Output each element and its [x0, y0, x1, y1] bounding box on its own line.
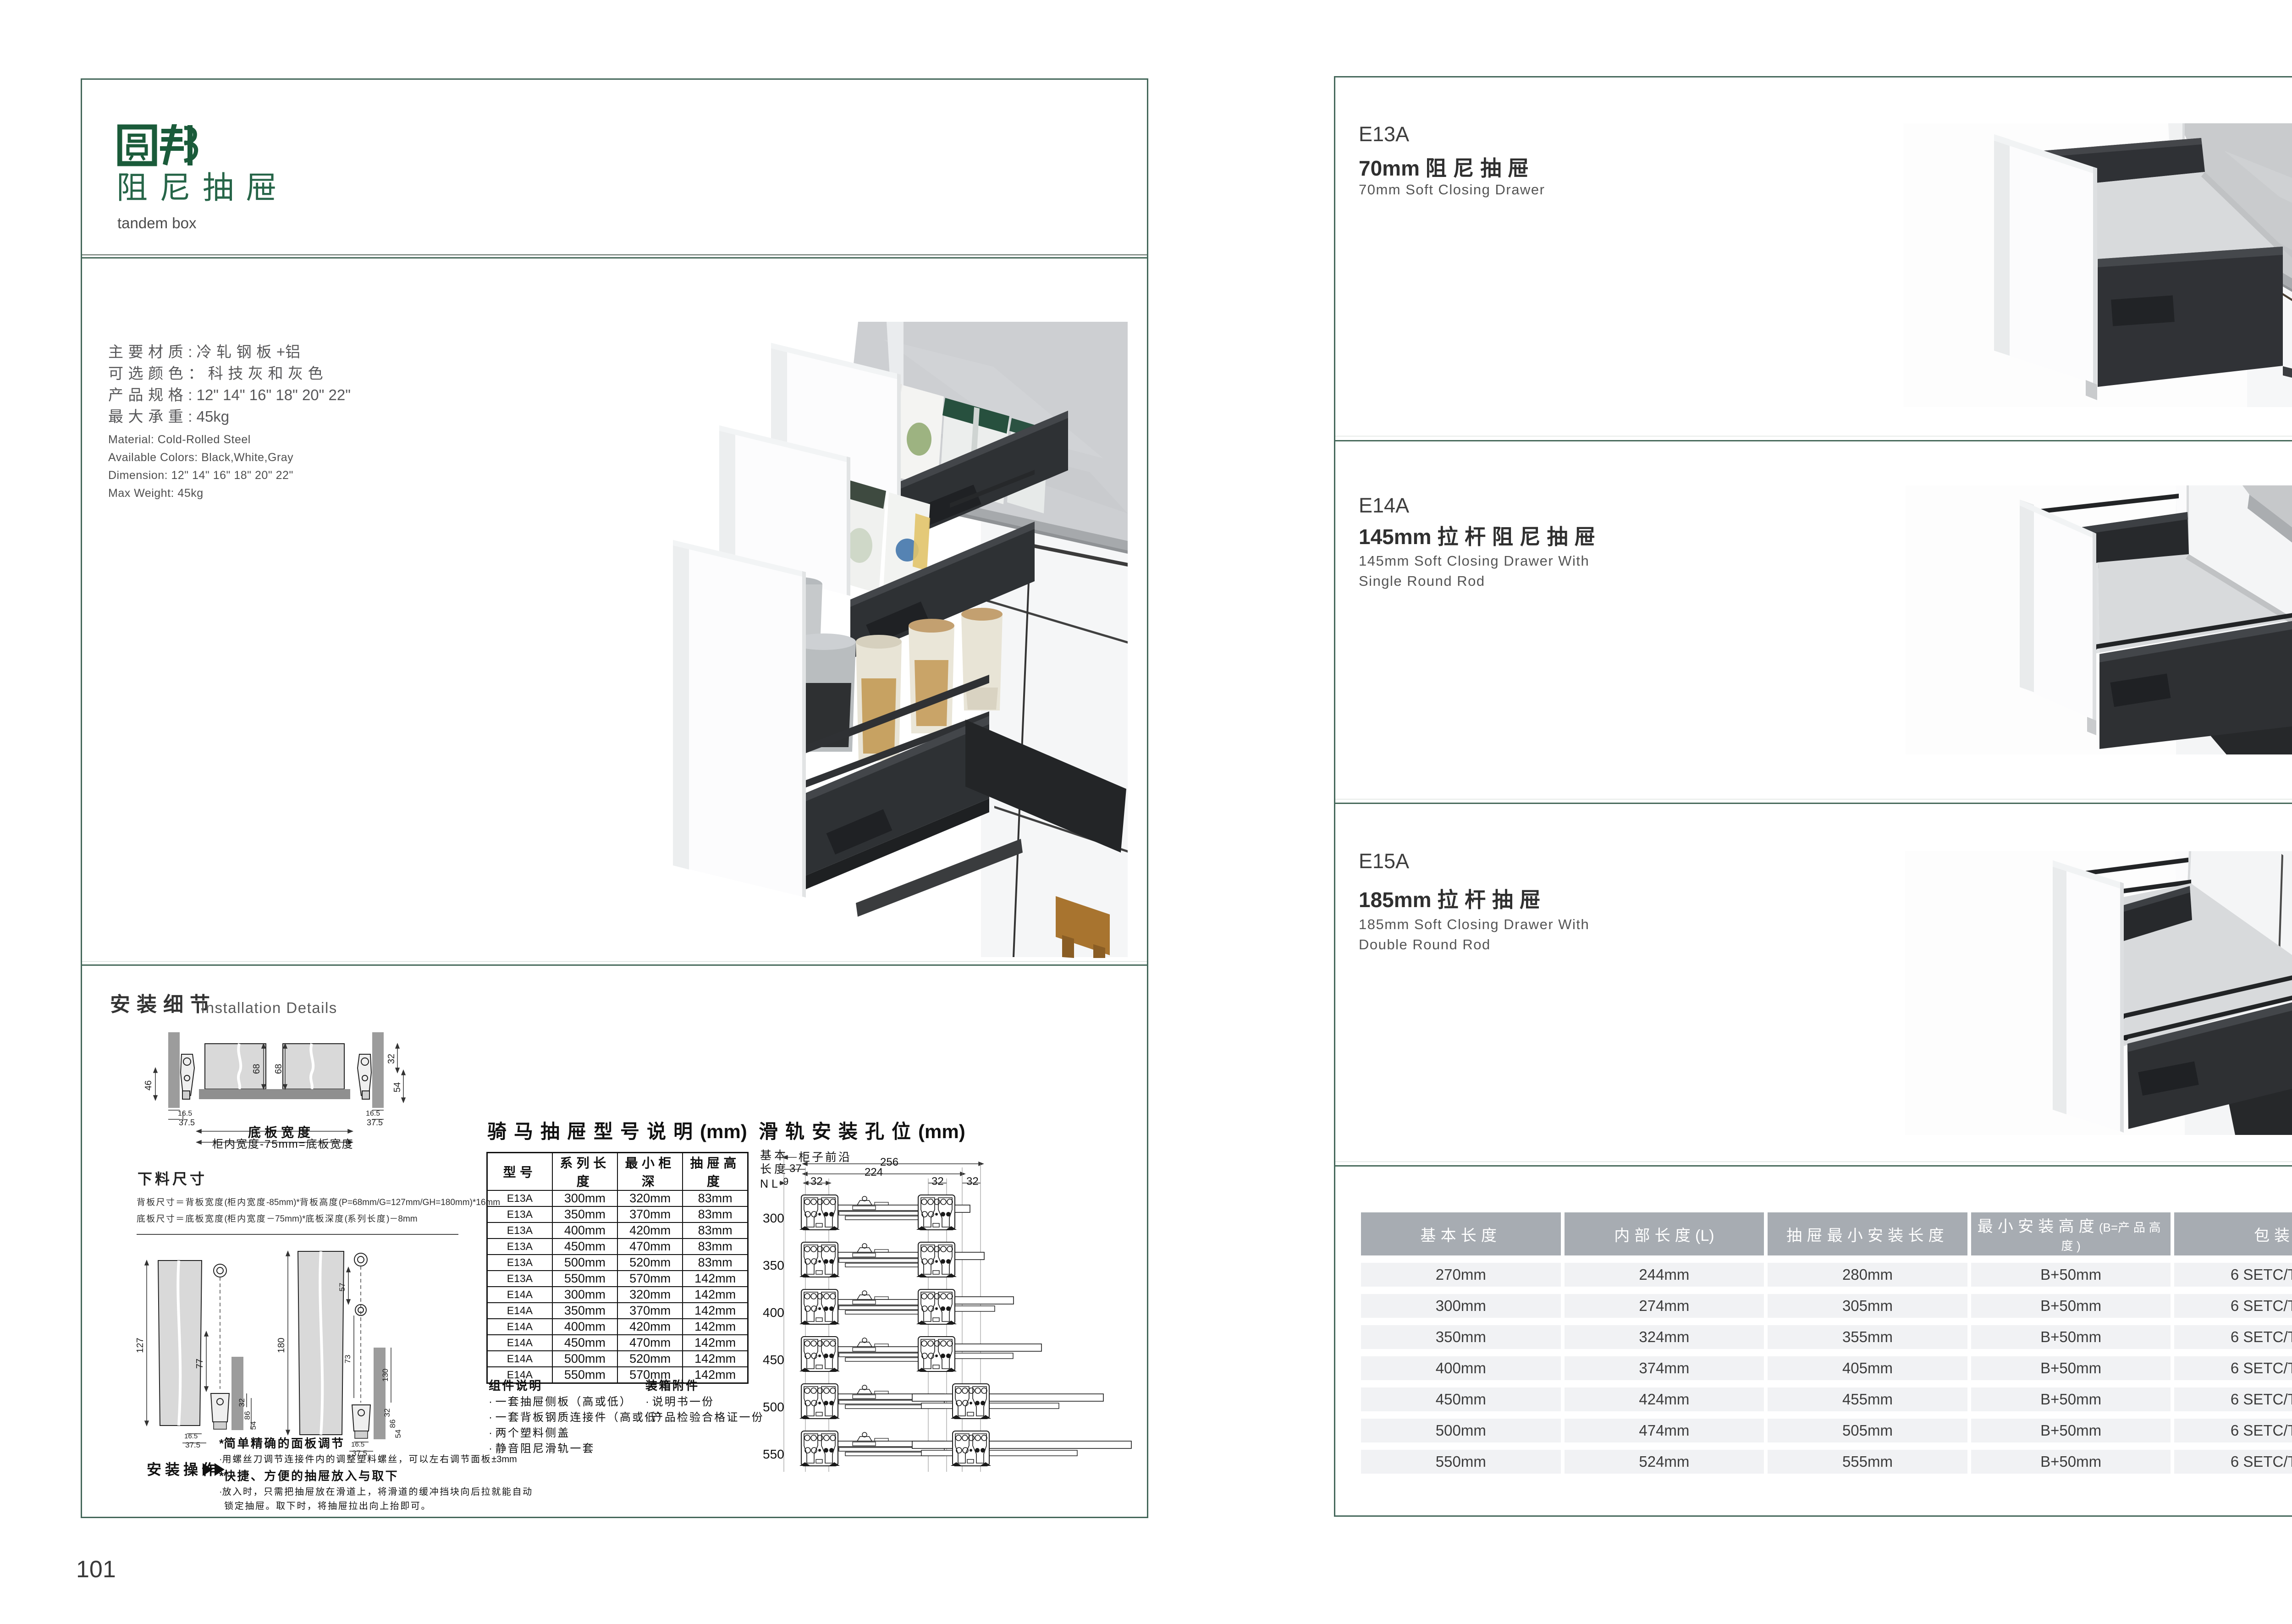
svg-text:73: 73 — [343, 1355, 352, 1364]
svg-text:127: 127 — [135, 1338, 145, 1353]
svg-text:37.5: 37.5 — [367, 1118, 383, 1127]
svg-text:32: 32 — [386, 1054, 397, 1064]
svg-text:37.5: 37.5 — [179, 1118, 195, 1127]
svg-text:32: 32 — [383, 1409, 391, 1417]
svg-text:550: 550 — [763, 1447, 784, 1461]
svg-text:130: 130 — [381, 1369, 390, 1382]
svg-text:224: 224 — [865, 1166, 883, 1178]
svg-text:46: 46 — [143, 1080, 154, 1090]
svg-text:N L: N L — [760, 1178, 778, 1190]
svg-text:57: 57 — [338, 1283, 347, 1292]
svg-text:180: 180 — [276, 1338, 286, 1353]
svg-text:基本: 基本 — [760, 1149, 788, 1162]
svg-text:底板宽度: 底板宽度 — [248, 1125, 314, 1140]
svg-text:400: 400 — [763, 1305, 784, 1320]
svg-text:68: 68 — [252, 1064, 262, 1074]
svg-text:16.5: 16.5 — [366, 1110, 380, 1118]
svg-text:柜子前沿: 柜子前沿 — [799, 1151, 852, 1164]
svg-text:54: 54 — [394, 1430, 402, 1438]
svg-text:32: 32 — [966, 1175, 979, 1188]
svg-text:37.5: 37.5 — [185, 1441, 200, 1449]
svg-text:54: 54 — [392, 1082, 402, 1092]
svg-text:柜内宽度-75mm=底板宽度: 柜内宽度-75mm=底板宽度 — [212, 1138, 354, 1151]
svg-text:32: 32 — [237, 1398, 246, 1407]
svg-text:77: 77 — [195, 1359, 205, 1369]
svg-text:32: 32 — [810, 1175, 823, 1188]
svg-text:300: 300 — [763, 1211, 784, 1225]
svg-text:450: 450 — [763, 1353, 784, 1367]
svg-text:54: 54 — [249, 1421, 258, 1430]
svg-text:500: 500 — [763, 1400, 784, 1414]
svg-text:37: 37 — [789, 1162, 802, 1175]
svg-text:32: 32 — [931, 1175, 944, 1188]
svg-text:16.5: 16.5 — [178, 1110, 192, 1118]
svg-text:68: 68 — [274, 1064, 284, 1074]
svg-text:86: 86 — [243, 1411, 252, 1420]
svg-text:86: 86 — [388, 1420, 397, 1428]
svg-text:350: 350 — [763, 1258, 784, 1272]
